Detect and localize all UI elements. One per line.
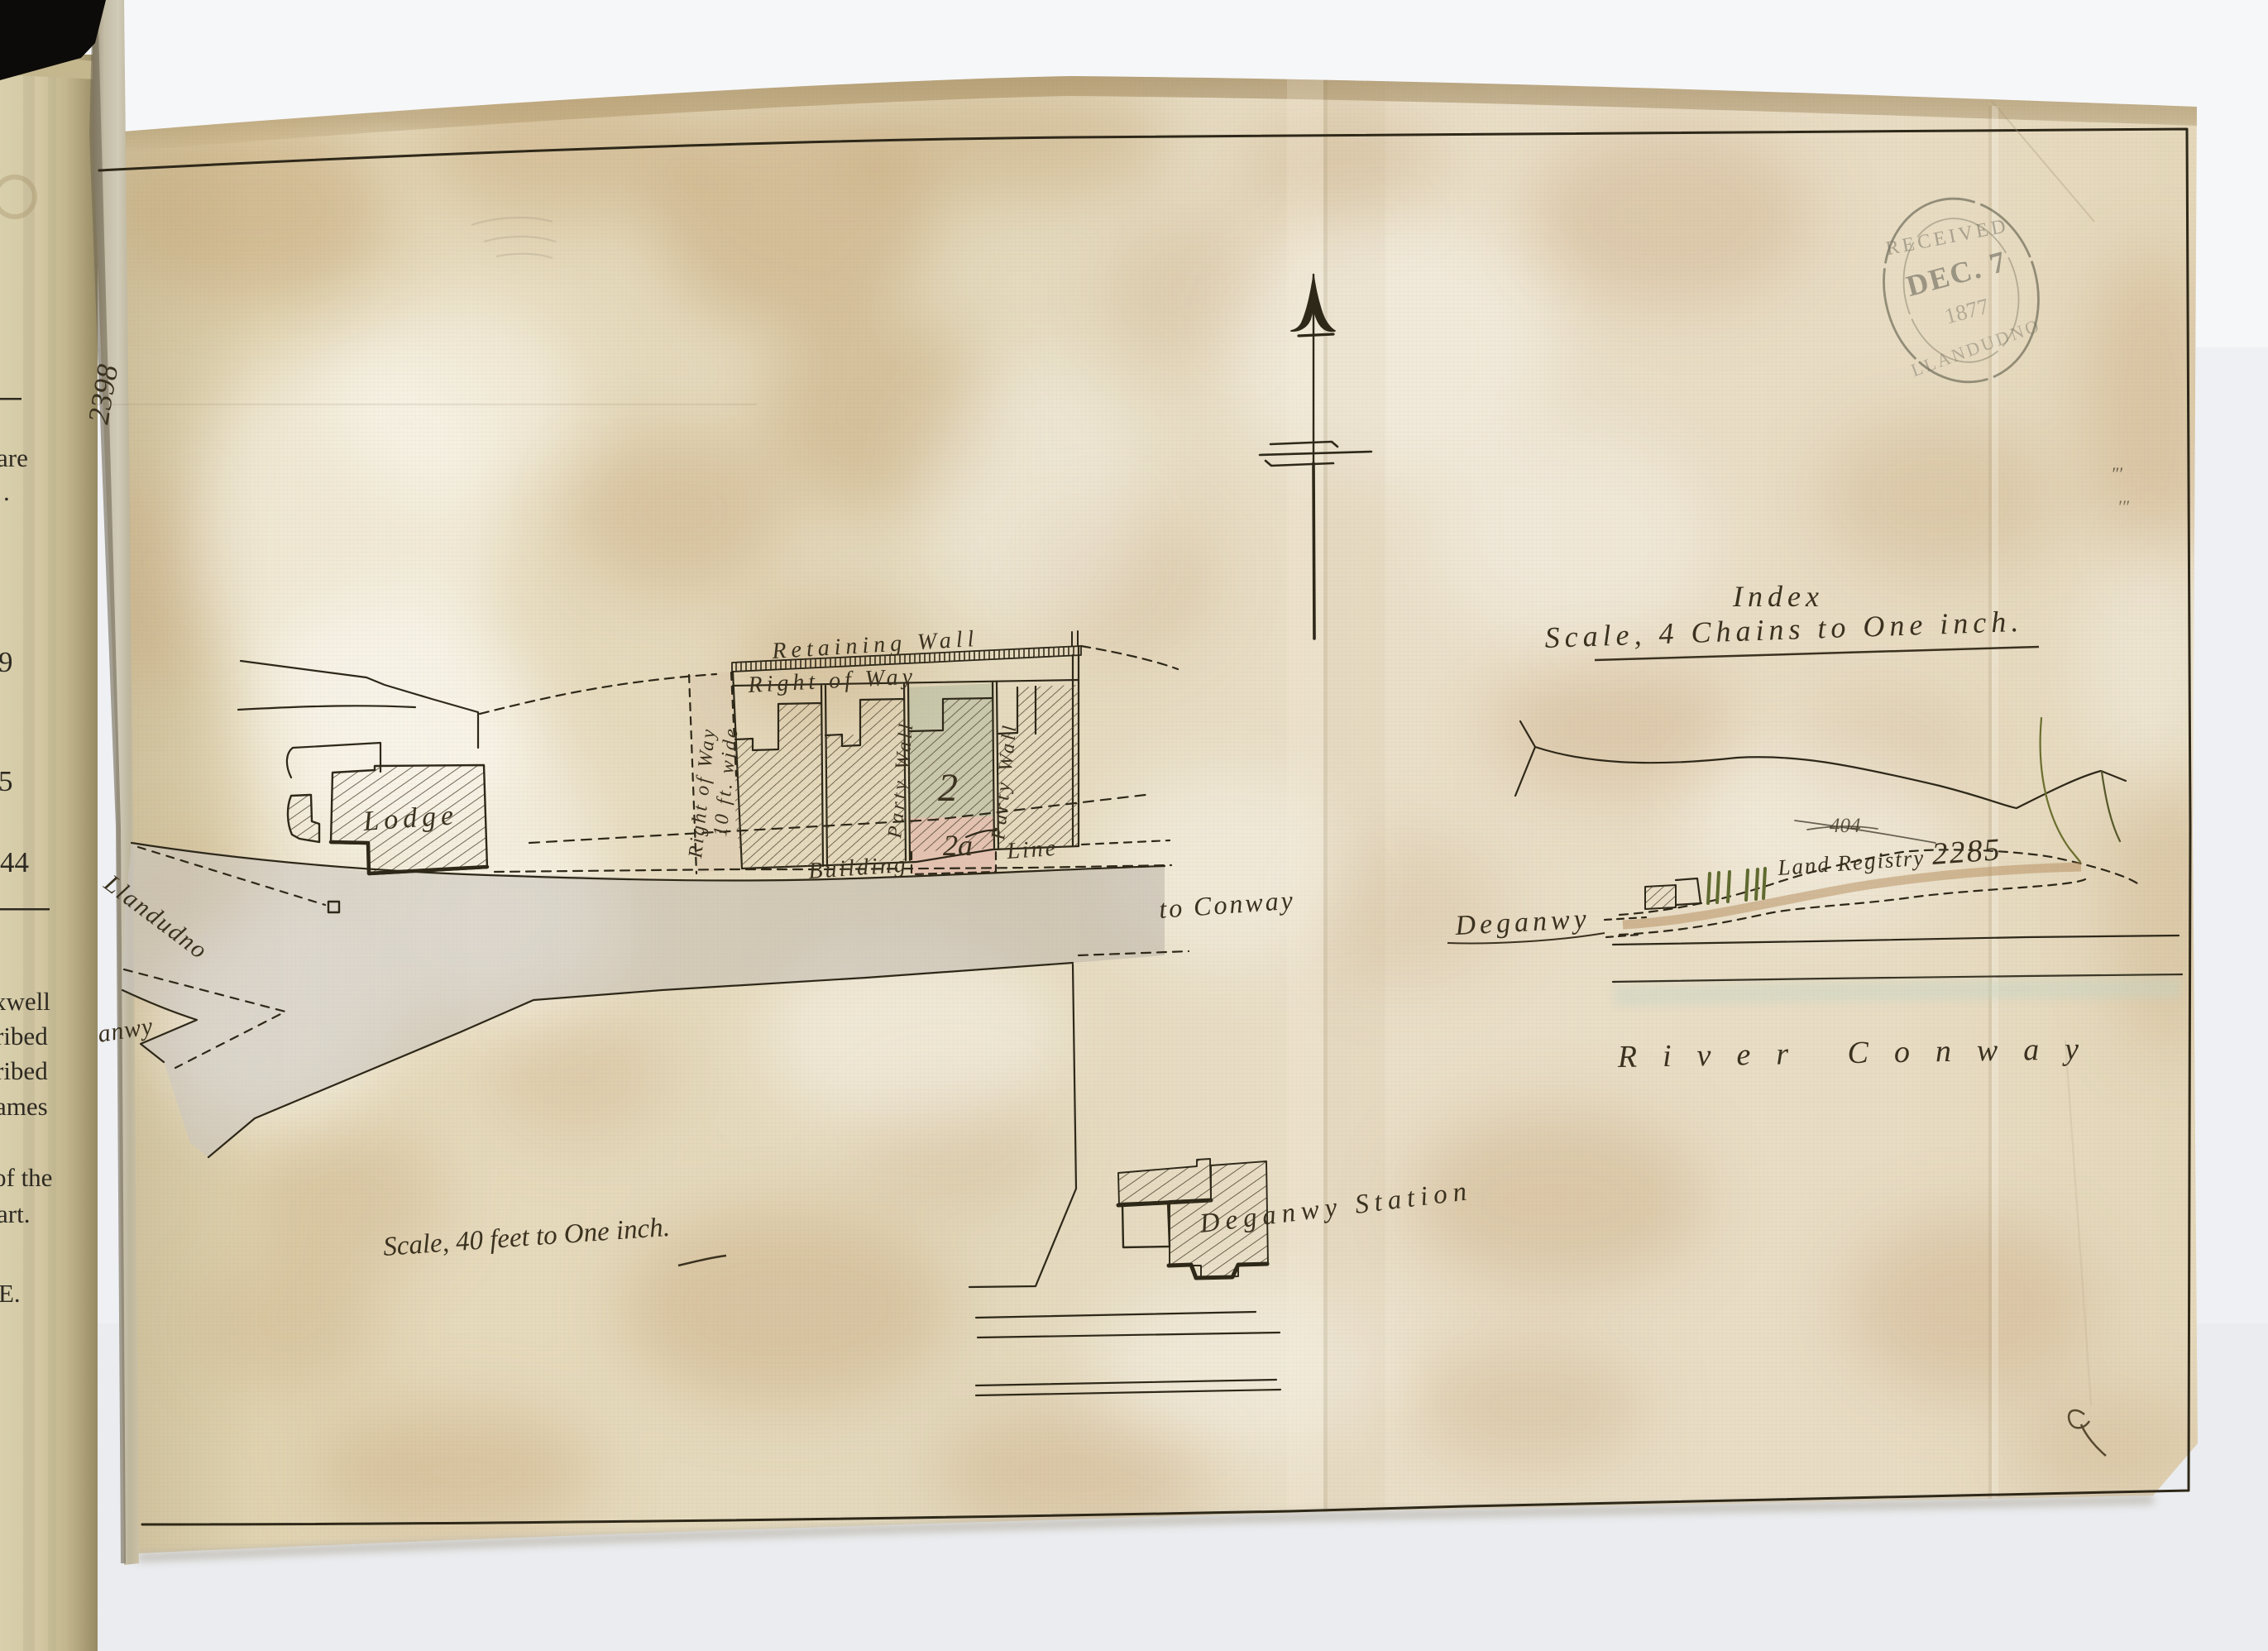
svg-text:Line: Line	[1005, 835, 1059, 864]
svg-text:of the: of the	[0, 1163, 52, 1192]
svg-text:xwell: xwell	[0, 987, 50, 1016]
svg-text:2: 2	[938, 766, 958, 810]
svg-text:ribed: ribed	[0, 1056, 48, 1085]
svg-text:″′: ″′	[2111, 463, 2123, 484]
svg-text:5: 5	[0, 765, 13, 797]
svg-text:2a: 2a	[943, 829, 973, 862]
svg-text:ames: ames	[0, 1092, 48, 1121]
svg-text:ribed: ribed	[0, 1022, 48, 1050]
svg-text:44: 44	[0, 846, 29, 878]
svg-text:404: 404	[1830, 815, 1861, 837]
svg-text:art.: art.	[0, 1199, 30, 1228]
svg-text:are: are	[0, 443, 28, 472]
svg-text:.: .	[3, 477, 10, 506]
svg-text:9: 9	[0, 646, 13, 678]
svg-text:′″: ′″	[2117, 496, 2130, 517]
svg-text:E.: E.	[0, 1279, 21, 1308]
svg-text:Index: Index	[1732, 580, 1824, 613]
